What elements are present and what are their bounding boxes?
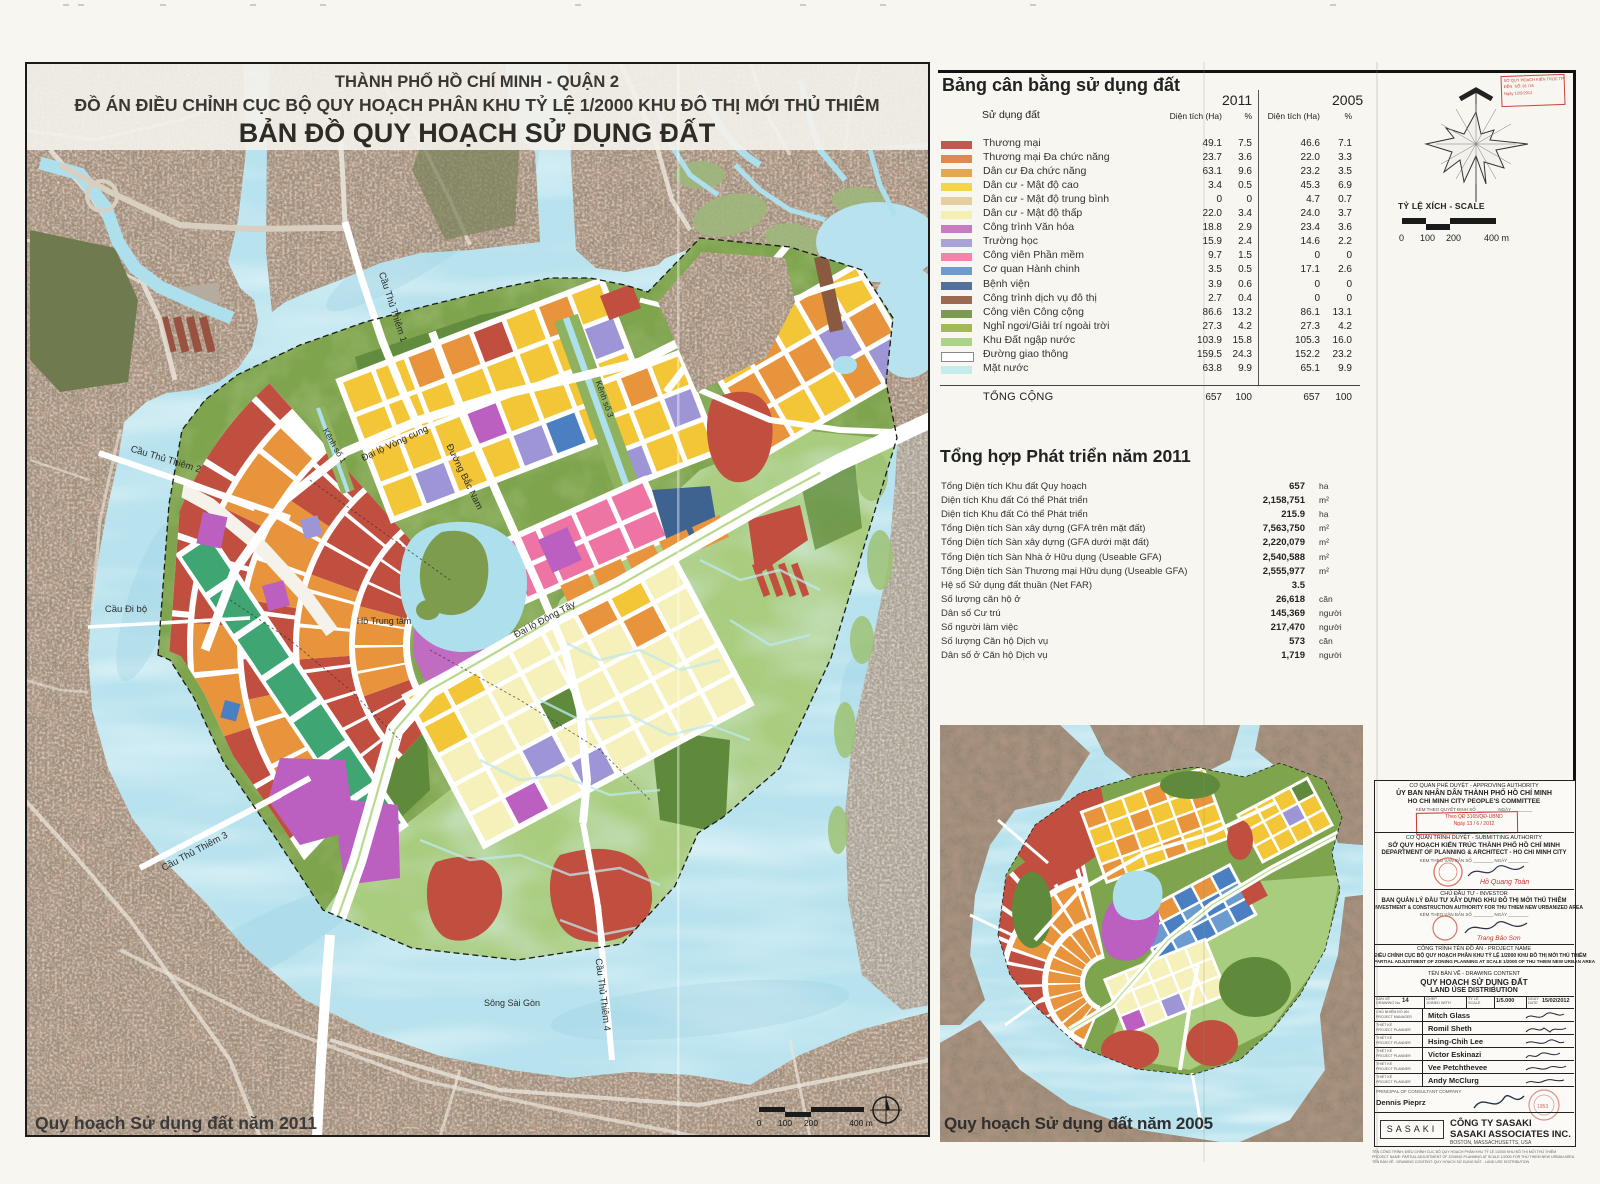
svg-text:Hồ Quang Toàn: Hồ Quang Toàn	[1480, 877, 1529, 886]
svg-text:Trang Bảo Sơn: Trang Bảo Sơn	[1477, 934, 1521, 942]
svg-text:1953: 1953	[1537, 1104, 1548, 1110]
